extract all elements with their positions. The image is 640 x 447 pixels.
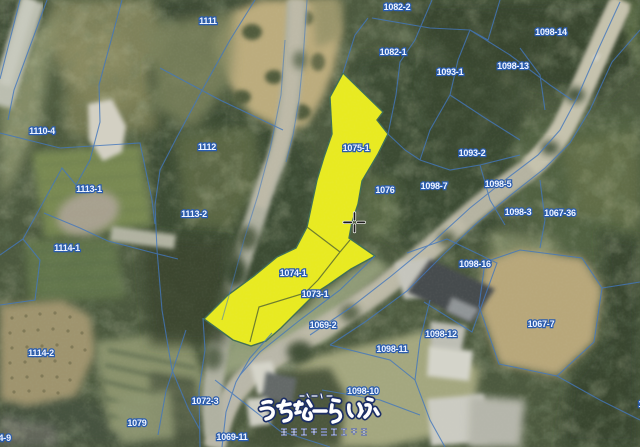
svg-text:1098-16: 1098-16 [459, 259, 491, 269]
svg-text:1082-1: 1082-1 [380, 47, 407, 57]
svg-text:1079: 1079 [127, 418, 146, 428]
svg-text:1098-13: 1098-13 [497, 61, 529, 71]
svg-text:1112: 1112 [198, 142, 216, 152]
svg-text:1082-2: 1082-2 [384, 2, 411, 12]
svg-text:1098-3: 1098-3 [505, 207, 532, 217]
svg-text:1069-11: 1069-11 [216, 432, 247, 442]
svg-text:1114-1: 1114-1 [54, 243, 80, 253]
svg-text:1098-14: 1098-14 [535, 27, 567, 37]
svg-text:1093-1: 1093-1 [437, 67, 464, 77]
svg-text:1114-9: 1114-9 [0, 433, 11, 443]
svg-text:1067-7: 1067-7 [528, 319, 555, 329]
svg-text:1111: 1111 [199, 16, 217, 26]
svg-text:1076: 1076 [375, 185, 394, 195]
svg-text:1098-11: 1098-11 [376, 344, 407, 354]
svg-text:1075-1: 1075-1 [343, 143, 370, 153]
svg-text:1098-12: 1098-12 [425, 329, 457, 339]
svg-text:1113-2: 1113-2 [181, 209, 207, 219]
svg-text:1098-10: 1098-10 [347, 386, 379, 396]
svg-text:1093-2: 1093-2 [459, 148, 486, 158]
svg-text:1069-2: 1069-2 [310, 320, 337, 330]
svg-text:1067-36: 1067-36 [544, 208, 576, 218]
svg-text:1072-3: 1072-3 [192, 396, 219, 406]
svg-text:1073-1: 1073-1 [302, 289, 329, 299]
svg-text:1113-1: 1113-1 [76, 184, 102, 194]
svg-text:1074-1: 1074-1 [280, 268, 307, 278]
svg-text:1098-5: 1098-5 [485, 179, 512, 189]
svg-text:1110-4: 1110-4 [29, 126, 55, 136]
svg-text:1098-7: 1098-7 [421, 181, 448, 191]
svg-text:1114-2: 1114-2 [28, 348, 54, 358]
